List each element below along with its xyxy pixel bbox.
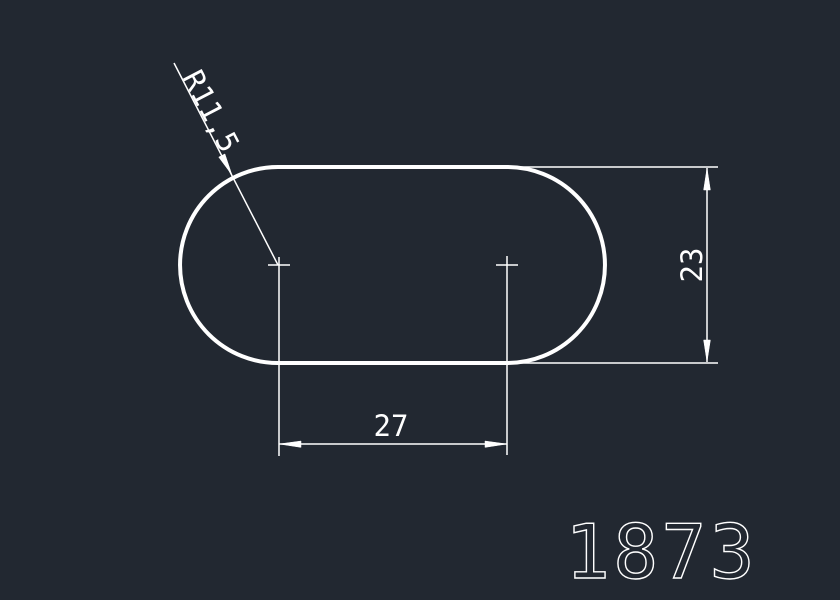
- cad-drawing: R11,5 23 27 1873: [0, 0, 840, 600]
- part-number: 1873: [565, 508, 758, 596]
- height-dimension-label: 23: [675, 248, 709, 283]
- cad-viewport: R11,5 23 27 1873: [0, 0, 840, 600]
- width-dimension-label: 27: [374, 409, 409, 443]
